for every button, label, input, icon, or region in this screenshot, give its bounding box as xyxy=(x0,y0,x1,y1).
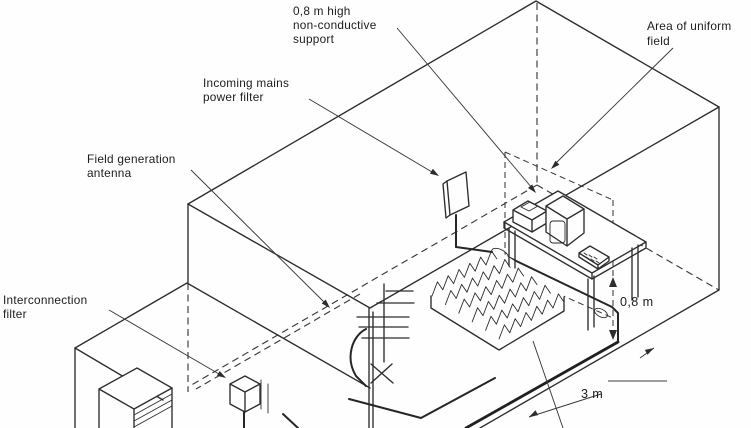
dim-0-8m-arrow-down xyxy=(609,330,617,340)
label-support: 0,8 m high non-conductive support xyxy=(293,4,377,46)
control-room-roof-edges xyxy=(75,283,370,388)
antenna-elements xyxy=(357,291,414,338)
label-interconnection-line2: filter xyxy=(3,307,27,321)
label-mains-filter: Incoming mains power filter xyxy=(203,76,289,104)
mains-filter-panel xyxy=(443,172,469,218)
test-chamber-diagram: 0,8 m high non-conductive support Area o… xyxy=(0,0,751,428)
diagram-canvas: 0,8 m high non-conductive support Area o… xyxy=(0,0,751,428)
label-mains-filter-line2: power filter xyxy=(203,90,264,104)
dimension-0-8m-text: 0,8 m xyxy=(620,295,654,309)
antenna-tripod-legs xyxy=(371,364,393,383)
floor-cable xyxy=(466,342,618,428)
labels: 0,8 m high non-conductive support Area o… xyxy=(3,4,731,401)
label-mains-filter-line1: Incoming mains xyxy=(203,76,289,90)
label-support-line2: non-conductive xyxy=(293,18,377,32)
dim-3m-arrow-left xyxy=(529,410,538,417)
equipment-rack xyxy=(99,368,172,428)
label-uniform-field-line1: Area of uniform xyxy=(647,19,731,33)
label-interconnection: Interconnection filter xyxy=(3,293,87,321)
label-antenna: Field generation antenna xyxy=(87,152,176,180)
label-uniform-field-line2: field xyxy=(647,34,670,48)
dimension-3m-text: 3 m xyxy=(581,387,603,401)
label-uniform-field: Area of uniform field xyxy=(647,19,731,48)
label-antenna-line2: antenna xyxy=(87,166,132,180)
coax-floor-run xyxy=(349,378,495,418)
arrow-uniform-field xyxy=(551,161,559,169)
chamber-roof-back-edges xyxy=(188,1,719,204)
filter-conduit xyxy=(261,380,268,413)
chamber-front-corner-post xyxy=(369,308,373,428)
table-leg-front xyxy=(588,276,594,330)
label-support-line1: 0,8 m high xyxy=(293,4,351,18)
label-antenna-line1: Field generation xyxy=(87,152,176,166)
label-interconnection-line1: Interconnection xyxy=(3,293,87,307)
leader-antenna xyxy=(191,170,325,303)
leader-support xyxy=(397,28,532,188)
label-support-line3: support xyxy=(293,32,335,46)
arrow-mains-filter xyxy=(430,169,439,176)
leader-interconnection xyxy=(109,310,219,374)
chamber-outline xyxy=(188,1,719,428)
dimension-antenna-distance xyxy=(529,348,667,417)
dim-0-8m-arrow-up xyxy=(609,277,617,287)
leader-mains-filter xyxy=(309,99,432,172)
filter-cable-exit xyxy=(283,414,298,428)
leader-uniform-field xyxy=(556,48,673,163)
interconnection-filter-box xyxy=(230,376,298,428)
